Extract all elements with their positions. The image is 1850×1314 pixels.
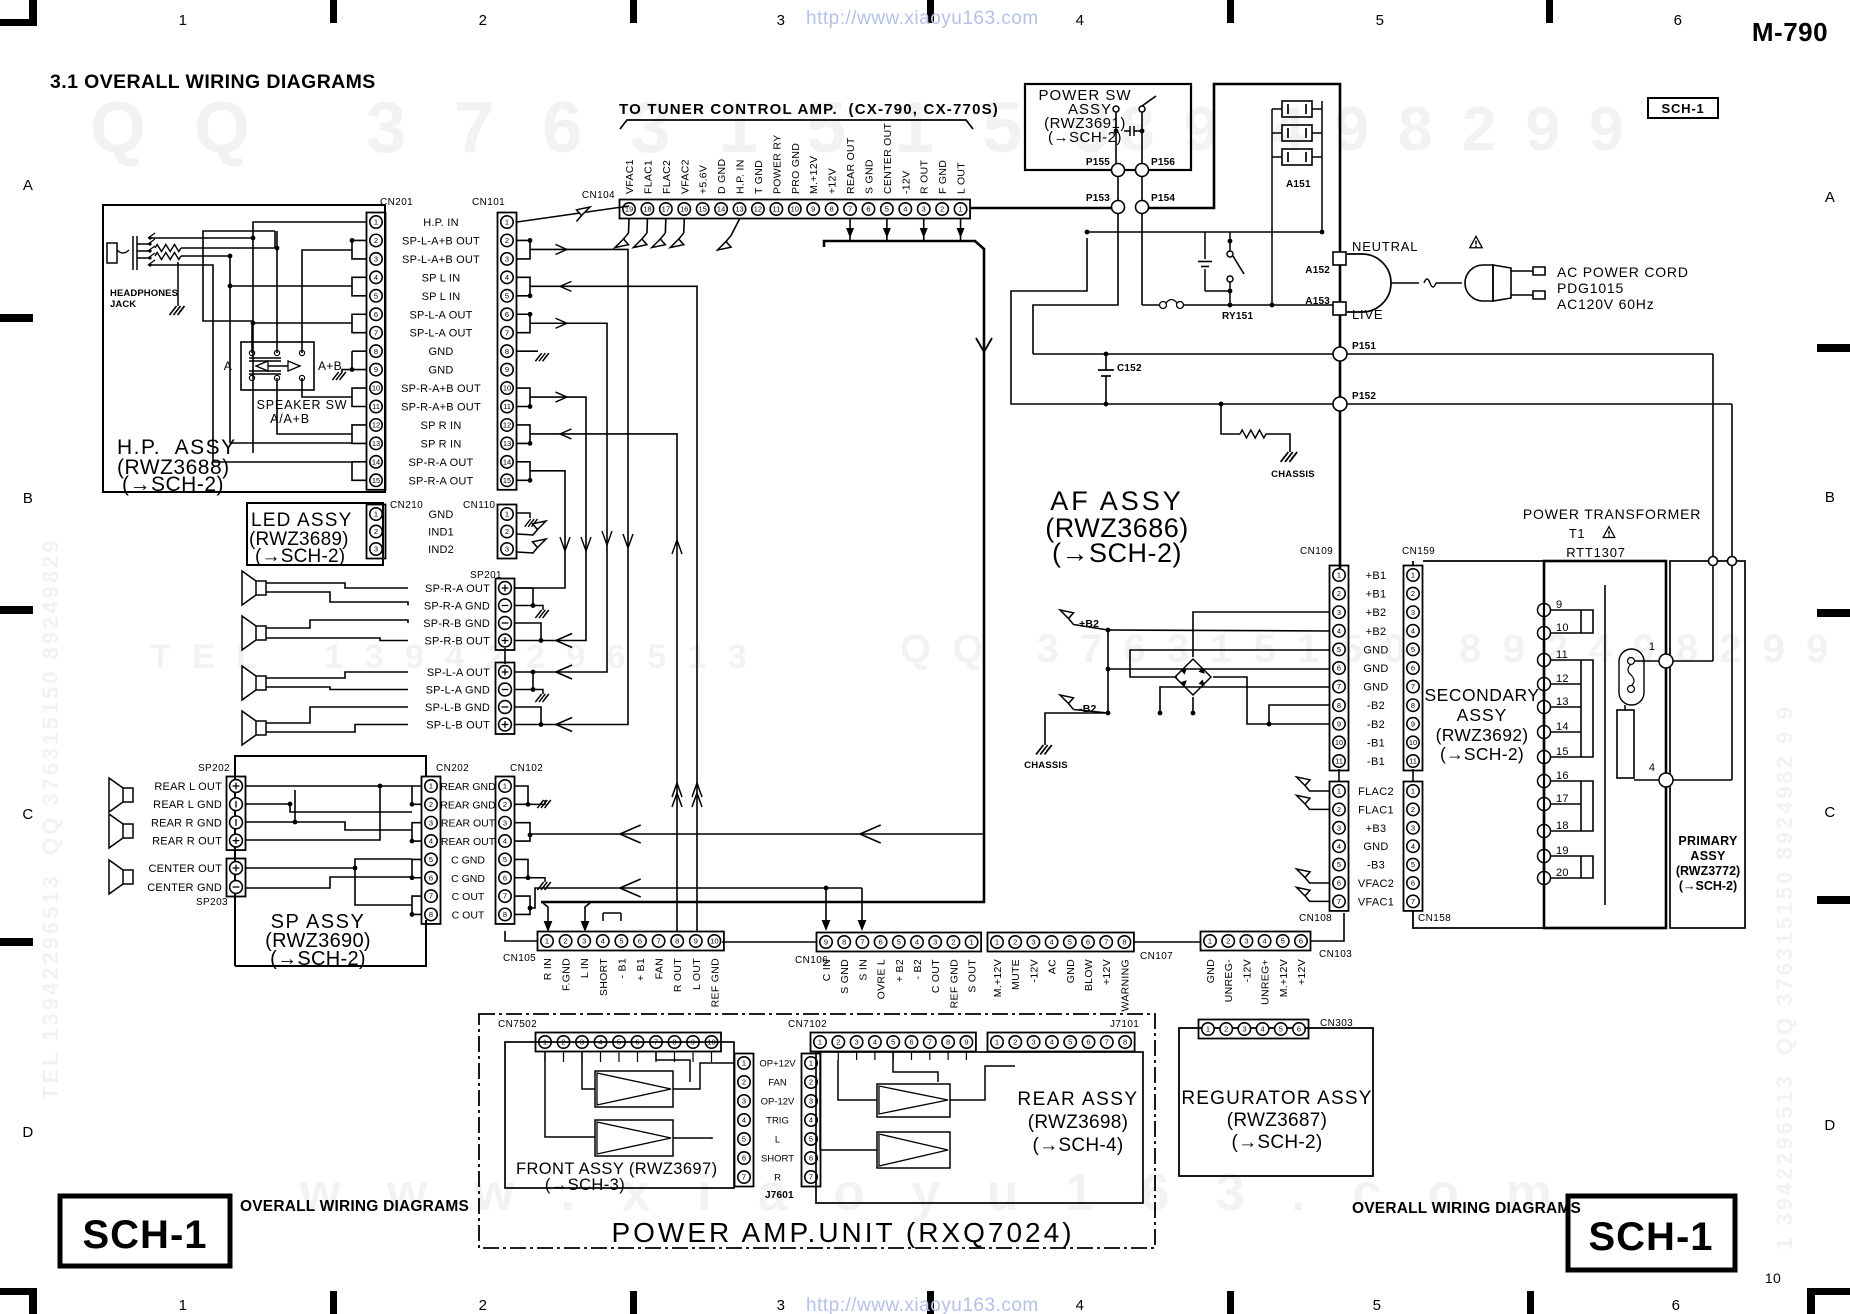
svg-text:7: 7 (1104, 938, 1108, 947)
svg-text:SP-L-A OUT: SP-L-A OUT (409, 328, 472, 340)
svg-text:REAR R GND: REAR R GND (151, 817, 222, 829)
svg-text:SP-L-A OUT: SP-L-A OUT (409, 309, 472, 321)
svg-text:1: 1 (1411, 571, 1415, 580)
svg-text:A: A (23, 177, 33, 194)
svg-text:11: 11 (503, 402, 511, 411)
svg-text:4: 4 (1076, 12, 1085, 29)
svg-text:CN102: CN102 (510, 763, 543, 774)
svg-text:5: 5 (809, 1135, 813, 1144)
svg-text:OP+12V: OP+12V (759, 1059, 796, 1070)
svg-text:5: 5 (1068, 1038, 1072, 1047)
svg-text:3: 3 (1411, 823, 1415, 832)
svg-text:BLOW: BLOW (1083, 959, 1095, 991)
svg-text:5: 5 (505, 291, 509, 300)
svg-text:3: 3 (1337, 608, 1341, 617)
svg-text:3: 3 (503, 818, 507, 827)
svg-text:OP-12V: OP-12V (761, 1097, 795, 1108)
svg-text:3: 3 (582, 937, 586, 946)
svg-text:4: 4 (429, 837, 433, 846)
svg-text:(→SCH-2): (→SCH-2) (270, 948, 366, 970)
svg-text:FLAC2: FLAC2 (1358, 786, 1394, 798)
svg-text:-B3: -B3 (1367, 860, 1385, 872)
svg-text:7: 7 (374, 328, 378, 337)
svg-text:C152: C152 (1117, 363, 1142, 374)
svg-text:+12V: +12V (1101, 959, 1113, 985)
svg-text:P152: P152 (1352, 391, 1376, 402)
svg-text:- B1: - B1 (616, 958, 628, 978)
svg-text:6: 6 (909, 1038, 913, 1047)
svg-text:R IN: R IN (542, 958, 554, 980)
svg-text:6: 6 (1411, 879, 1415, 888)
svg-text:1: 1 (505, 218, 509, 227)
svg-text:2: 2 (1226, 937, 1230, 946)
svg-text:PRIMARY: PRIMARY (1678, 834, 1738, 848)
svg-text:CN104: CN104 (582, 190, 615, 201)
svg-text:1: 1 (995, 1038, 999, 1047)
svg-text:J7101: J7101 (1110, 1019, 1139, 1030)
svg-text:-B2: -B2 (1367, 719, 1385, 731)
svg-text:C IN: C IN (821, 959, 833, 981)
svg-text:http://www.xiaoyu163.com: http://www.xiaoyu163.com (806, 1295, 1039, 1314)
svg-text:1: 1 (545, 937, 549, 946)
svg-text:HEADPHONES: HEADPHONES (110, 288, 178, 299)
svg-text:M.+12V: M.+12V (992, 959, 1004, 997)
svg-text:3: 3 (1032, 1038, 1036, 1047)
svg-text:8: 8 (1122, 938, 1126, 947)
svg-text:3: 3 (777, 1297, 786, 1314)
svg-text:9: 9 (374, 365, 378, 374)
svg-text:SPEAKER SW: SPEAKER SW (257, 398, 348, 412)
svg-text:3: 3 (1031, 938, 1035, 947)
svg-text:(→SCH-2): (→SCH-2) (255, 546, 345, 567)
svg-text:2: 2 (1013, 938, 1017, 947)
svg-text:7: 7 (1337, 682, 1341, 691)
svg-text:8 9 4 9 8 2 9 9: 8 9 4 9 8 2 9 9 (1120, 95, 1630, 164)
svg-text:8: 8 (842, 938, 846, 947)
svg-text:L IN: L IN (579, 958, 591, 978)
svg-text:R OUT: R OUT (919, 160, 931, 194)
svg-text:3: 3 (809, 1097, 813, 1106)
svg-text:1: 1 (1649, 641, 1655, 653)
svg-text:C OUT: C OUT (452, 891, 485, 903)
svg-text:4: 4 (742, 1116, 746, 1125)
svg-text:2: 2 (1411, 589, 1415, 598)
svg-text:2: 2 (1224, 1025, 1228, 1034)
svg-text:SP-R-A GND: SP-R-A GND (424, 601, 490, 613)
svg-text:3: 3 (742, 1097, 746, 1106)
svg-text:5: 5 (1337, 860, 1341, 869)
svg-text:MUTE: MUTE (1010, 959, 1022, 990)
svg-text:6: 6 (1337, 664, 1341, 673)
svg-text:2: 2 (564, 937, 568, 946)
svg-text:GND: GND (428, 346, 453, 358)
svg-text:5: 5 (1411, 645, 1415, 654)
svg-text:1: 1 (970, 938, 974, 947)
svg-text:5: 5 (1337, 645, 1341, 654)
svg-text:1: 1 (1337, 571, 1341, 580)
svg-text:11: 11 (1335, 757, 1343, 766)
svg-text:RY151: RY151 (1222, 311, 1253, 322)
svg-text:7: 7 (860, 938, 864, 947)
svg-text:14: 14 (717, 205, 725, 214)
svg-text:15: 15 (503, 476, 511, 485)
svg-text:6: 6 (1411, 664, 1415, 673)
svg-text:JACK: JACK (110, 299, 136, 310)
svg-text:H.P. IN: H.P. IN (423, 217, 458, 229)
svg-text:4: 4 (873, 1038, 877, 1047)
svg-text:2: 2 (1013, 1038, 1017, 1047)
svg-text:3: 3 (374, 545, 378, 554)
svg-text:1: 1 (1411, 787, 1415, 796)
svg-text:5: 5 (374, 291, 378, 300)
svg-text:10: 10 (791, 205, 799, 214)
svg-text:CN303: CN303 (1320, 1018, 1353, 1029)
svg-text:4: 4 (1076, 1297, 1085, 1314)
svg-text:2: 2 (1411, 805, 1415, 814)
svg-text:4: 4 (903, 205, 907, 214)
svg-text:4: 4 (1050, 938, 1054, 947)
svg-text:7: 7 (1411, 682, 1415, 691)
svg-text:WARNING: WARNING (1119, 959, 1131, 1011)
svg-text:7: 7 (1411, 897, 1415, 906)
svg-text:SCH-1: SCH-1 (1661, 101, 1704, 116)
svg-text:CN101: CN101 (472, 197, 505, 208)
svg-text:(RWZ3692): (RWZ3692) (1436, 725, 1529, 745)
svg-text:9: 9 (505, 365, 509, 374)
svg-text:8: 8 (1123, 1038, 1127, 1047)
svg-text:SP-L-B GND: SP-L-B GND (425, 702, 490, 714)
svg-text:-B1: -B1 (1367, 737, 1385, 749)
svg-text:FAN: FAN (768, 1078, 787, 1089)
svg-text:SP203: SP203 (196, 897, 228, 908)
svg-text:-B1: -B1 (1367, 756, 1385, 768)
svg-text:SP L IN: SP L IN (422, 272, 461, 284)
svg-text:5: 5 (1376, 12, 1385, 29)
svg-text:7: 7 (742, 1173, 746, 1182)
svg-text:SP-R-A OUT: SP-R-A OUT (409, 457, 474, 469)
svg-text:P155: P155 (1086, 157, 1110, 168)
svg-text:REF GND: REF GND (948, 959, 960, 1008)
svg-text:2: 2 (1337, 589, 1341, 598)
svg-text:8: 8 (946, 1038, 950, 1047)
svg-text:12: 12 (754, 205, 762, 214)
svg-text:(→SCH-2): (→SCH-2) (1231, 1132, 1322, 1153)
svg-text:5: 5 (891, 1038, 895, 1047)
svg-text:REAR OUT: REAR OUT (441, 818, 496, 830)
svg-text:3: 3 (505, 545, 509, 554)
svg-text:9: 9 (1411, 719, 1415, 728)
svg-text:A151: A151 (1286, 179, 1311, 190)
svg-text:POWER AMP.UNIT (RXQ7024): POWER AMP.UNIT (RXQ7024) (611, 1217, 1074, 1248)
svg-text:REGURATOR ASSY: REGURATOR ASSY (1181, 1088, 1372, 1109)
svg-text:M.+12V: M.+12V (808, 156, 820, 194)
svg-text:2: 2 (374, 236, 378, 245)
svg-text:9: 9 (1337, 719, 1341, 728)
svg-text:CN109: CN109 (1300, 546, 1333, 557)
svg-text:8: 8 (1337, 701, 1341, 710)
svg-text:SCH-1: SCH-1 (82, 1213, 207, 1257)
svg-text:1: 1 (1206, 1025, 1210, 1034)
svg-text:8: 8 (374, 347, 378, 356)
svg-text:10: 10 (372, 384, 380, 393)
svg-text:15: 15 (372, 476, 380, 485)
svg-text:6: 6 (1674, 12, 1683, 29)
svg-text:GND: GND (1065, 959, 1077, 983)
svg-text:4: 4 (374, 273, 378, 282)
svg-text:6: 6 (1672, 1297, 1681, 1314)
svg-text:Q Q 3 7 6 3 1 5 1 5 0: Q Q 3 7 6 3 1 5 1 5 0 (90, 88, 1124, 168)
svg-text:+B2: +B2 (1366, 607, 1387, 619)
svg-text:14: 14 (503, 457, 511, 466)
svg-text:+12V: +12V (1296, 959, 1308, 985)
svg-text:5: 5 (1281, 937, 1285, 946)
svg-text:C: C (22, 806, 33, 823)
svg-text:2: 2 (503, 800, 507, 809)
svg-text:VFAC2: VFAC2 (679, 159, 691, 194)
svg-text:SP-R-A+B OUT: SP-R-A+B OUT (401, 383, 481, 395)
svg-text:4: 4 (809, 1116, 813, 1125)
svg-text:SHORT: SHORT (761, 1154, 794, 1165)
svg-text:4: 4 (1050, 1038, 1054, 1047)
svg-text:-B2: -B2 (1367, 700, 1385, 712)
svg-text:+ B2: + B2 (894, 959, 906, 982)
svg-text:5: 5 (619, 937, 623, 946)
svg-text:CN105: CN105 (503, 953, 536, 964)
svg-text:P156: P156 (1151, 157, 1175, 168)
svg-text:7: 7 (1105, 1038, 1109, 1047)
svg-text:11: 11 (772, 205, 780, 214)
svg-text:CN202: CN202 (436, 763, 469, 774)
svg-text:9: 9 (811, 205, 815, 214)
svg-text:L OUT: L OUT (691, 958, 703, 990)
svg-text:7: 7 (928, 1038, 932, 1047)
svg-text:SP-L-A+B OUT: SP-L-A+B OUT (402, 235, 480, 247)
svg-text:SP-L-B OUT: SP-L-B OUT (426, 720, 490, 732)
svg-text:1: 1 (179, 1297, 188, 1314)
svg-text:7: 7 (1337, 897, 1341, 906)
svg-text:13: 13 (503, 439, 511, 448)
svg-text:VFAC2: VFAC2 (1358, 878, 1394, 890)
svg-text:4: 4 (1411, 842, 1415, 851)
svg-text:RTT1307: RTT1307 (1566, 545, 1626, 560)
svg-text:A+B: A+B (318, 359, 342, 373)
svg-text:(→SCH-2): (→SCH-2) (1052, 538, 1182, 568)
svg-text:AC: AC (1047, 959, 1059, 974)
svg-text:5: 5 (1411, 860, 1415, 869)
svg-text:M.+12V: M.+12V (1278, 959, 1290, 997)
svg-text:-12V: -12V (900, 171, 912, 194)
svg-text:1: 1 (1337, 787, 1341, 796)
svg-text:1: 1 (179, 12, 188, 29)
svg-text:B: B (1825, 489, 1835, 506)
svg-text:1: 1 (958, 205, 962, 214)
svg-text:C OUT: C OUT (930, 959, 942, 993)
svg-text:S GND: S GND (863, 159, 875, 194)
svg-text:1: 1 (809, 1059, 813, 1068)
svg-text:5: 5 (429, 855, 433, 864)
svg-text:10: 10 (710, 937, 718, 946)
svg-text:13: 13 (372, 439, 380, 448)
svg-text:8: 8 (1411, 701, 1415, 710)
svg-text:C OUT: C OUT (452, 909, 485, 921)
svg-text:REAR R OUT: REAR R OUT (152, 836, 222, 848)
svg-text:POWER TRANSFORMER: POWER TRANSFORMER (1523, 506, 1701, 522)
svg-text:REAR L OUT: REAR L OUT (154, 781, 222, 793)
svg-text:CENTER OUT: CENTER OUT (882, 122, 894, 194)
svg-text:7: 7 (809, 1173, 813, 1182)
svg-text:5: 5 (742, 1135, 746, 1144)
svg-text:3: 3 (1337, 823, 1341, 832)
svg-text:2: 2 (505, 527, 509, 536)
svg-text:6: 6 (1299, 937, 1303, 946)
svg-text:4: 4 (505, 273, 509, 282)
svg-text:VFAC1: VFAC1 (1358, 896, 1394, 908)
svg-text:CN158: CN158 (1418, 913, 1451, 924)
svg-text:F.GND: F.GND (561, 958, 573, 991)
svg-text:CN7102: CN7102 (788, 1019, 827, 1030)
svg-text:6: 6 (1297, 1025, 1301, 1034)
svg-text:6: 6 (503, 873, 507, 882)
svg-text:+12V: +12V (827, 168, 839, 194)
svg-text:(→SCH-2): (→SCH-2) (1440, 744, 1524, 764)
svg-text:GND: GND (1363, 841, 1388, 853)
svg-text:2: 2 (940, 205, 944, 214)
svg-text:GND: GND (428, 365, 453, 377)
svg-text:(→SCH-2): (→SCH-2) (1679, 879, 1737, 893)
svg-text:+B3: +B3 (1366, 823, 1387, 835)
svg-text:12: 12 (372, 421, 380, 430)
svg-text:17: 17 (662, 205, 670, 214)
svg-text:3: 3 (374, 255, 378, 264)
svg-text:6: 6 (505, 310, 509, 319)
svg-text:SP202: SP202 (198, 763, 230, 774)
svg-text:T1: T1 (1569, 526, 1585, 541)
svg-text:D GND: D GND (716, 159, 728, 194)
svg-text:4: 4 (1261, 1025, 1265, 1034)
svg-text:T GND: T GND (753, 160, 765, 194)
svg-text:7: 7 (657, 937, 661, 946)
svg-text:P153: P153 (1086, 193, 1110, 204)
svg-text:1: 1 (818, 1038, 822, 1047)
svg-text:2: 2 (836, 1038, 840, 1047)
svg-text:GND: GND (1363, 663, 1388, 675)
svg-text:+B1: +B1 (1366, 570, 1387, 582)
svg-text:REF GND: REF GND (709, 958, 721, 1007)
svg-text:GND: GND (428, 509, 453, 521)
svg-text:SP-R-A+B OUT: SP-R-A+B OUT (401, 402, 481, 414)
svg-text:S IN: S IN (857, 959, 869, 981)
svg-text:6: 6 (809, 1154, 813, 1163)
svg-text:CN103: CN103 (1319, 949, 1352, 960)
svg-text:4: 4 (1411, 626, 1415, 635)
svg-text:SCH-1: SCH-1 (1588, 1215, 1713, 1259)
svg-text:4: 4 (1263, 937, 1267, 946)
svg-text:3: 3 (429, 818, 433, 827)
svg-text:TRIG: TRIG (766, 1116, 789, 1127)
svg-text:3: 3 (933, 938, 937, 947)
svg-text:1 3942296513 QQ 376315150 892: 1 3942296513 QQ 376315150 8924982 9 9 (1772, 704, 1797, 1250)
svg-text:FLAC1: FLAC1 (1358, 804, 1394, 816)
svg-text:9: 9 (964, 1038, 968, 1047)
svg-text:TO TUNER CONTROL AMP. (CX-790: TO TUNER CONTROL AMP. (CX-790, CX-770S) (619, 101, 999, 118)
svg-text:4: 4 (601, 937, 605, 946)
svg-text:2: 2 (429, 800, 433, 809)
svg-text:18: 18 (643, 205, 651, 214)
svg-text:REAR L GND: REAR L GND (153, 799, 222, 811)
svg-text:REAR OUT: REAR OUT (845, 137, 857, 194)
svg-text:13: 13 (735, 205, 743, 214)
svg-text:10: 10 (1335, 738, 1343, 747)
svg-text:1: 1 (505, 510, 509, 519)
svg-text:5: 5 (1068, 938, 1072, 947)
svg-text:ASSY: ASSY (1457, 705, 1508, 725)
svg-text:SP-L-A OUT: SP-L-A OUT (427, 667, 490, 679)
svg-text:+ B1: + B1 (635, 958, 647, 981)
svg-text:(RWZ3698): (RWZ3698) (1028, 1112, 1129, 1133)
svg-text:LIVE: LIVE (1352, 307, 1383, 322)
svg-text:ASSY: ASSY (1690, 849, 1726, 863)
svg-text:6: 6 (429, 873, 433, 882)
svg-text:FLAC1: FLAC1 (642, 160, 654, 194)
svg-text:5: 5 (897, 938, 901, 947)
svg-text:CN107: CN107 (1140, 951, 1173, 962)
svg-text:B: B (23, 490, 33, 507)
svg-text:2: 2 (505, 236, 509, 245)
svg-text:OVERALL WIRING DIAGRAMS: OVERALL WIRING DIAGRAMS (1352, 1200, 1581, 1217)
svg-text:+B2: +B2 (1366, 626, 1387, 638)
svg-text:GND: GND (1363, 644, 1388, 656)
svg-text:R OUT: R OUT (672, 958, 684, 992)
svg-text:C GND: C GND (451, 854, 485, 866)
svg-text:2: 2 (809, 1078, 813, 1087)
svg-text:POWER RY: POWER RY (771, 135, 783, 194)
svg-text:D: D (22, 1124, 33, 1141)
svg-text:REAR ASSY: REAR ASSY (1017, 1089, 1138, 1110)
svg-text:GND: GND (1363, 682, 1388, 694)
svg-text:CENTER OUT: CENTER OUT (149, 863, 223, 875)
svg-text:+5.6V: +5.6V (698, 165, 710, 194)
svg-text:(RWZ3687): (RWZ3687) (1227, 1110, 1328, 1131)
svg-text:4: 4 (915, 938, 919, 947)
svg-text:NEUTRAL: NEUTRAL (1352, 239, 1418, 254)
svg-text:SP-L-A GND: SP-L-A GND (426, 685, 490, 697)
svg-text:9: 9 (694, 937, 698, 946)
svg-text:3: 3 (855, 1038, 859, 1047)
svg-text:SECONDARY: SECONDARY (1424, 685, 1539, 705)
svg-text:SP L IN: SP L IN (422, 291, 461, 303)
svg-text:2: 2 (951, 938, 955, 947)
svg-text:(→SCH-4): (→SCH-4) (1032, 1135, 1123, 1156)
svg-text:LED ASSY: LED ASSY (251, 510, 352, 531)
svg-text:12: 12 (503, 421, 511, 430)
svg-text:3: 3 (777, 12, 786, 29)
svg-text:A152: A152 (1305, 265, 1330, 276)
svg-text:4: 4 (1649, 762, 1655, 774)
svg-text:L: L (775, 1135, 780, 1146)
svg-text:7: 7 (503, 892, 507, 901)
svg-text:CHASSIS: CHASSIS (1024, 760, 1068, 771)
svg-text:CN110: CN110 (463, 500, 495, 511)
svg-text:AC POWER CORD: AC POWER CORD (1557, 264, 1689, 280)
svg-text:CENTER GND: CENTER GND (147, 882, 222, 894)
svg-text:S OUT: S OUT (967, 959, 979, 993)
svg-text:7: 7 (505, 328, 509, 337)
svg-text:M-790: M-790 (1752, 17, 1828, 47)
svg-text:-12V: -12V (1241, 959, 1253, 982)
svg-text:1: 1 (429, 782, 433, 791)
svg-text:6: 6 (1337, 879, 1341, 888)
svg-text:H.P. IN: H.P. IN (735, 159, 747, 194)
